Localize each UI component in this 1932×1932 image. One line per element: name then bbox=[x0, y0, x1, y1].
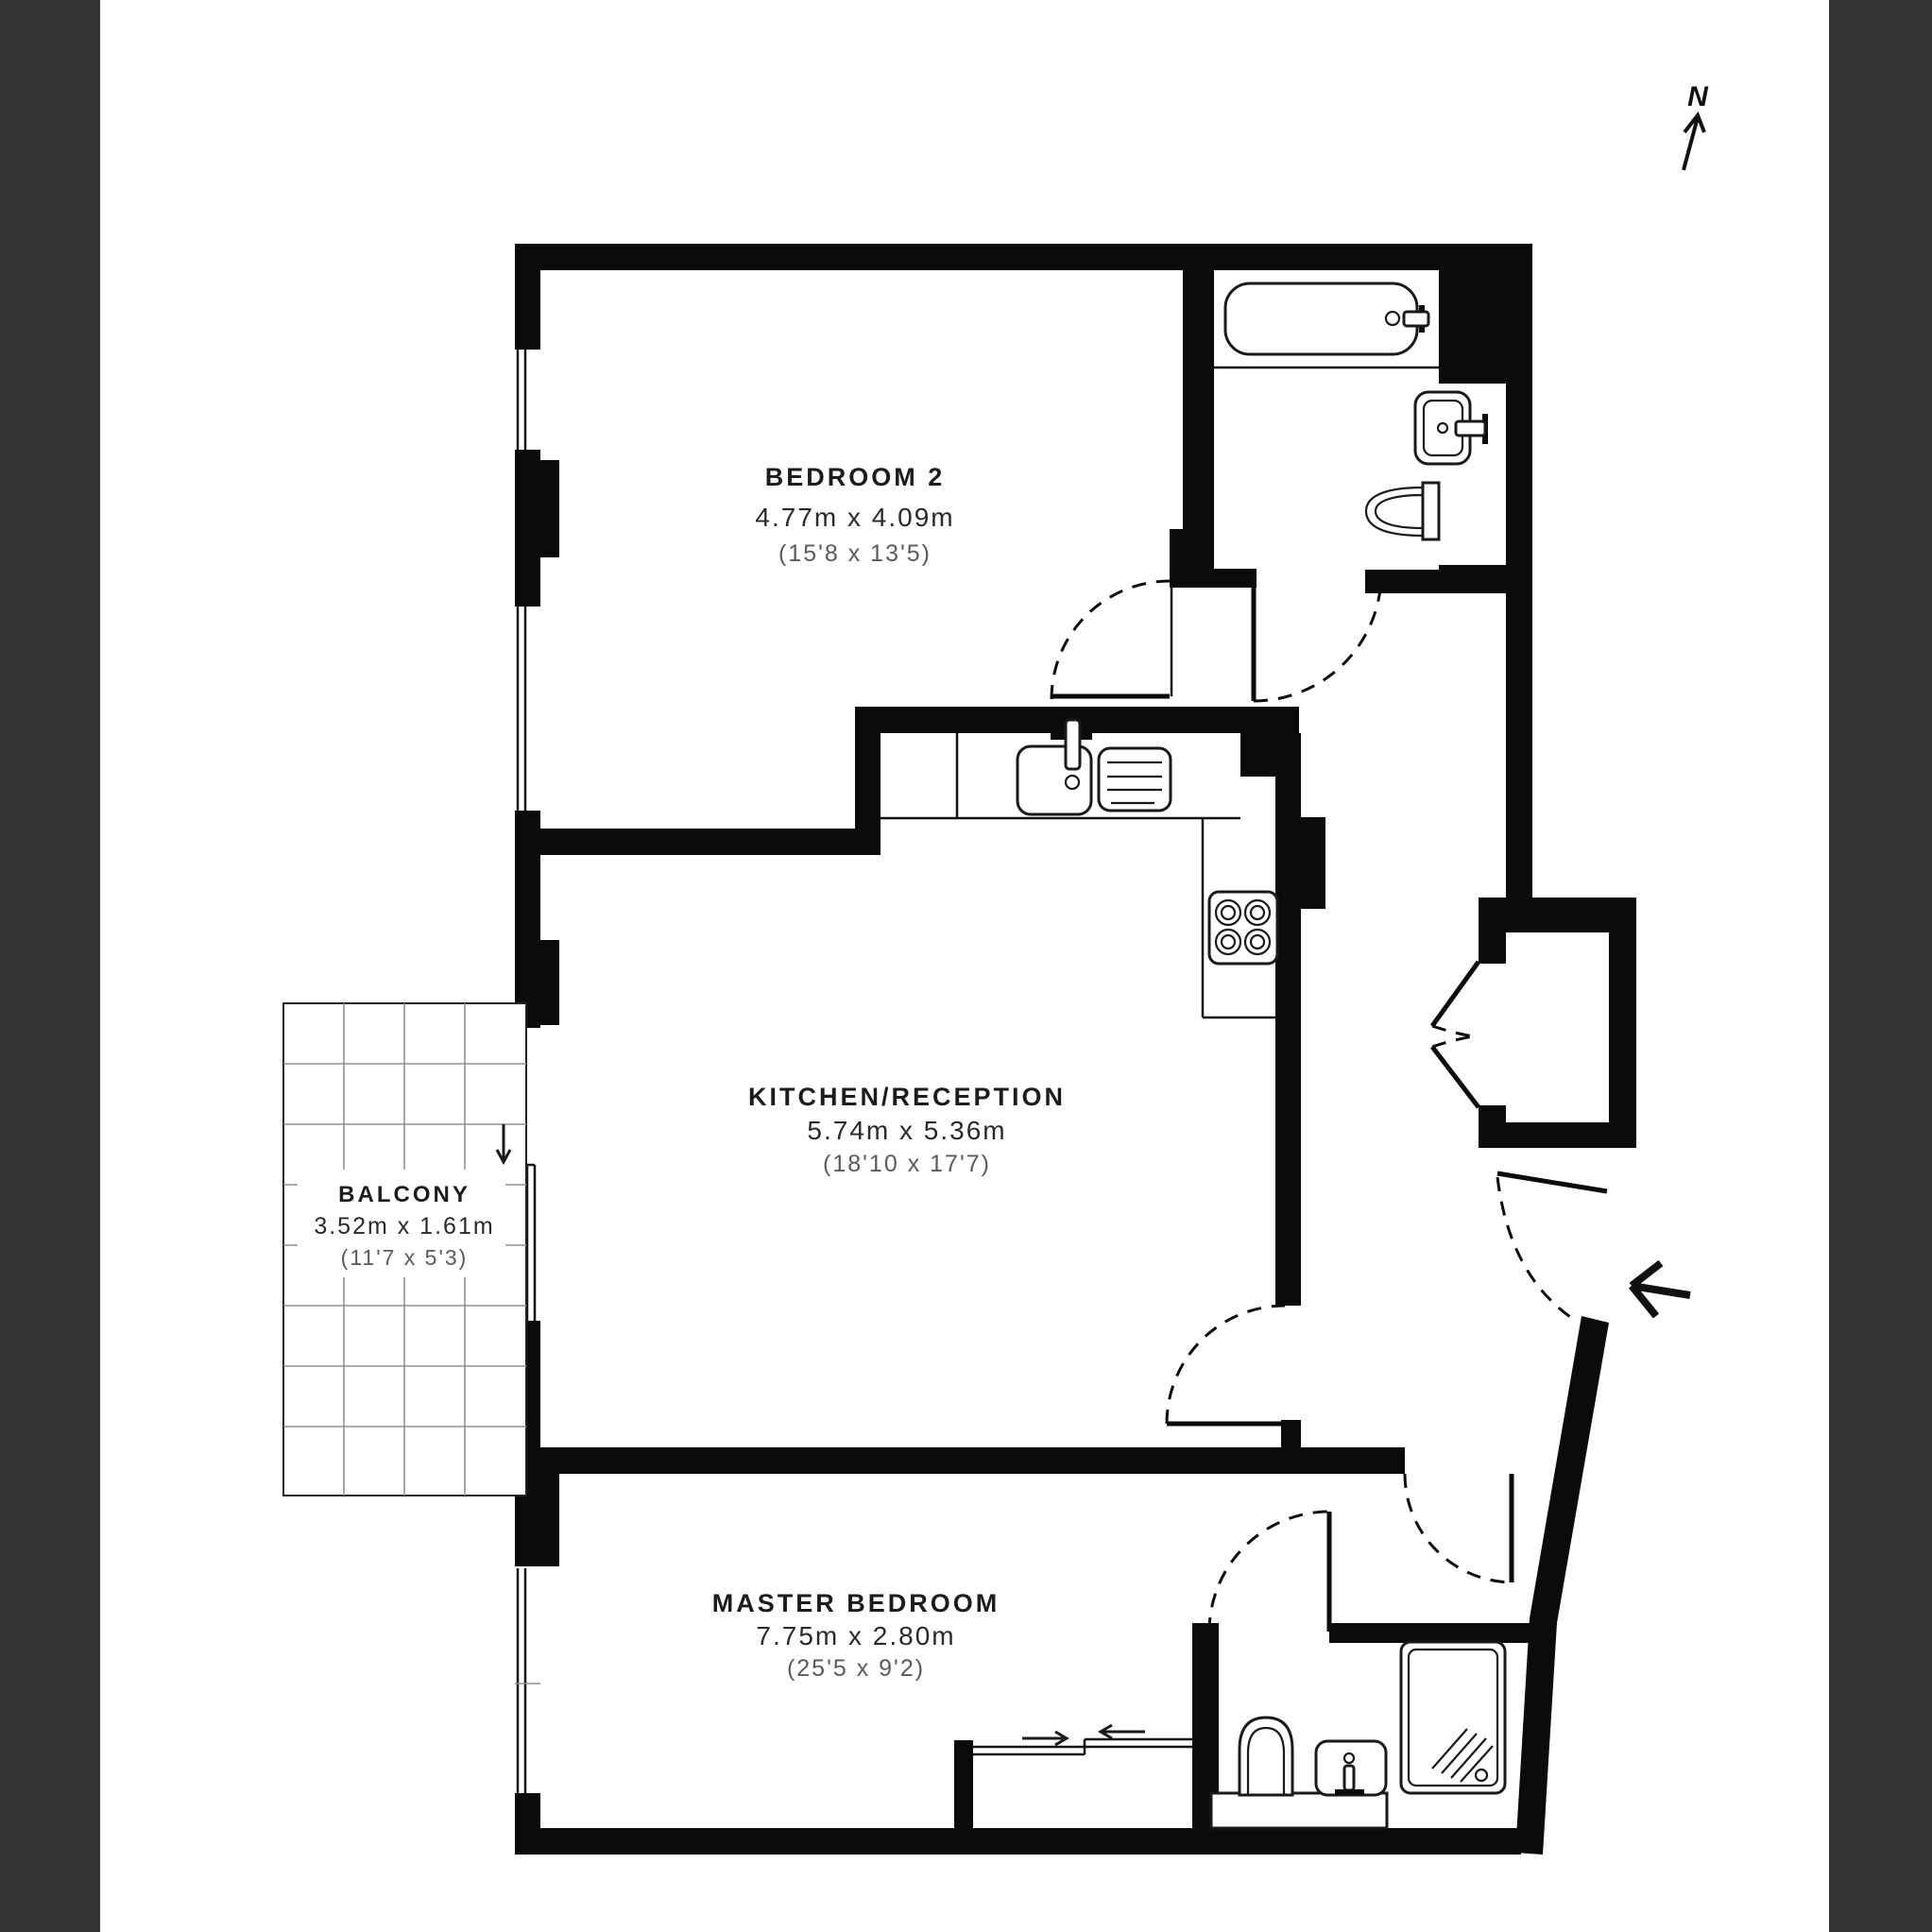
ensuite-fixtures bbox=[1211, 1642, 1505, 1828]
entry-arrow-icon bbox=[1632, 1263, 1690, 1316]
kitchen-hob-icon bbox=[1209, 892, 1277, 964]
north-arrow-icon: N bbox=[1684, 81, 1709, 170]
hall-closet-doors bbox=[1432, 962, 1479, 1107]
ensuite-shower-icon bbox=[1401, 1642, 1505, 1793]
room-dimensions-ft: (15'8 x 13'5) bbox=[778, 540, 932, 567]
room-label-kitchen-reception: KITCHEN/RECEPTION 5.74m x 5.36m (18'10 x… bbox=[748, 1083, 1066, 1177]
room-dimensions-m: 7.75m x 2.80m bbox=[756, 1621, 955, 1650]
master-window bbox=[515, 1568, 540, 1793]
bedroom2-window-lower bbox=[518, 607, 525, 811]
entry-door bbox=[1497, 1173, 1607, 1321]
right-side-panel bbox=[1829, 0, 1932, 1932]
ensuite-basin-icon bbox=[1316, 1741, 1386, 1795]
room-dimensions-m: 4.77m x 4.09m bbox=[755, 503, 954, 532]
master-bedroom-door bbox=[1405, 1474, 1512, 1582]
room-label-master-bedroom: MASTER BEDROOM 7.75m x 2.80m (25'5 x 9'2… bbox=[712, 1589, 1000, 1682]
room-name: KITCHEN/RECEPTION bbox=[748, 1083, 1066, 1111]
room-label-balcony: BALCONY 3.52m x 1.61m (11'7 x 5'3) bbox=[314, 1182, 494, 1270]
bedroom2-window-upper bbox=[518, 350, 525, 450]
bathroom-door bbox=[1254, 573, 1381, 701]
room-dimensions-m: 3.52m x 1.61m bbox=[314, 1213, 494, 1240]
ensuite-toilet-icon bbox=[1240, 1718, 1292, 1795]
left-side-panel bbox=[0, 0, 100, 1932]
wardrobe-sliding-doors bbox=[973, 1725, 1192, 1754]
room-name: MASTER BEDROOM bbox=[712, 1589, 1000, 1617]
room-dimensions-ft: (18'10 x 17'7) bbox=[823, 1151, 991, 1177]
bedroom2-door bbox=[1051, 581, 1171, 699]
compass-label: N bbox=[1687, 81, 1709, 112]
kitchen-drainer-icon bbox=[1099, 748, 1171, 811]
floorplan-page: N BEDROOM 2 4.77m x 4.09m (15'8 x 13'5) … bbox=[0, 0, 1932, 1932]
bathroom-basin-icon bbox=[1415, 392, 1485, 464]
walls bbox=[515, 244, 1636, 1855]
bathtub-icon bbox=[1225, 283, 1428, 354]
room-name: BALCONY bbox=[338, 1182, 470, 1207]
room-dimensions-ft: (25'5 x 9'2) bbox=[787, 1655, 925, 1682]
kitchen-fixtures bbox=[881, 720, 1277, 1017]
ensuite-door bbox=[1209, 1512, 1329, 1632]
room-label-bedroom2: BEDROOM 2 4.77m x 4.09m (15'8 x 13'5) bbox=[755, 463, 954, 567]
room-dimensions-m: 5.74m x 5.36m bbox=[807, 1116, 1006, 1145]
floorplan-canvas: N BEDROOM 2 4.77m x 4.09m (15'8 x 13'5) … bbox=[0, 0, 1932, 1932]
room-dimensions-ft: (11'7 x 5'3) bbox=[341, 1245, 469, 1270]
room-name: BEDROOM 2 bbox=[765, 463, 946, 491]
kitchen-door bbox=[1167, 1306, 1285, 1424]
bathroom-toilet-icon bbox=[1366, 483, 1439, 539]
kitchen-sink-icon bbox=[1017, 720, 1092, 814]
